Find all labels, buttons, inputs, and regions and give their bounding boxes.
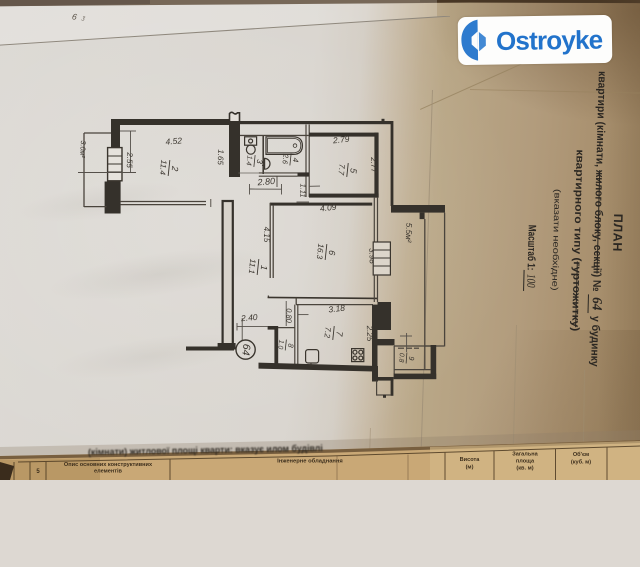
svg-text:1.65: 1.65 bbox=[216, 149, 226, 165]
svg-text:0.8: 0.8 bbox=[397, 353, 405, 363]
svg-text:4.09: 4.09 bbox=[319, 202, 337, 214]
svg-text:7: 7 bbox=[334, 331, 345, 338]
svg-text:9: 9 bbox=[407, 356, 416, 362]
svg-text:16.3: 16.3 bbox=[315, 243, 326, 260]
svg-text:3.0м²: 3.0м² bbox=[78, 140, 88, 158]
svg-text:Висота: Висота bbox=[460, 457, 481, 463]
svg-text:2.40: 2.40 bbox=[240, 312, 259, 324]
svg-text:1: 1 bbox=[259, 265, 269, 271]
svg-text:0.80: 0.80 bbox=[284, 308, 293, 324]
svg-text:1.4: 1.4 bbox=[245, 155, 255, 166]
svg-text:5: 5 bbox=[348, 168, 359, 175]
svg-text:Загальна: Загальна bbox=[512, 452, 538, 458]
svg-text:4: 4 bbox=[291, 157, 300, 163]
svg-text:Об'єм: Об'єм bbox=[573, 451, 589, 458]
svg-text:2.6: 2.6 bbox=[281, 153, 291, 165]
svg-text:(м): (м) bbox=[466, 465, 474, 471]
svg-text:4.52: 4.52 bbox=[165, 135, 183, 146]
svg-text:5.5м²: 5.5м² bbox=[404, 223, 414, 243]
svg-text:площа: площа bbox=[516, 459, 535, 465]
svg-text:(кв. м): (кв. м) bbox=[516, 466, 533, 472]
svg-text:елементів: елементів bbox=[94, 469, 123, 475]
svg-text:Опис основних конструктивних: Опис основних конструктивних bbox=[64, 462, 153, 468]
svg-text:7.7: 7.7 bbox=[336, 163, 346, 176]
svg-text:2.77: 2.77 bbox=[369, 156, 379, 173]
svg-text:8: 8 bbox=[286, 343, 295, 349]
svg-text:1.11: 1.11 bbox=[298, 183, 307, 197]
svg-text:3.18: 3.18 bbox=[328, 303, 346, 315]
svg-text:2: 2 bbox=[170, 165, 181, 172]
svg-text:11.1: 11.1 bbox=[247, 258, 258, 274]
svg-text:1.0: 1.0 bbox=[276, 339, 284, 349]
svg-text:2.80: 2.80 bbox=[256, 176, 275, 188]
svg-text:(куб. м): (куб. м) bbox=[571, 459, 591, 466]
svg-text:6: 6 bbox=[327, 250, 337, 256]
svg-text:7.2: 7.2 bbox=[322, 326, 332, 339]
svg-text:2.25: 2.25 bbox=[365, 325, 374, 342]
svg-text:64: 64 bbox=[239, 343, 252, 356]
svg-text:Інженерне обладнання: Інженерне обладнання bbox=[277, 458, 343, 465]
svg-text:11.4: 11.4 bbox=[158, 159, 169, 175]
svg-text:2.79: 2.79 bbox=[331, 134, 350, 146]
svg-text:2.55: 2.55 bbox=[125, 151, 135, 168]
svg-text:4.15: 4.15 bbox=[262, 227, 271, 243]
